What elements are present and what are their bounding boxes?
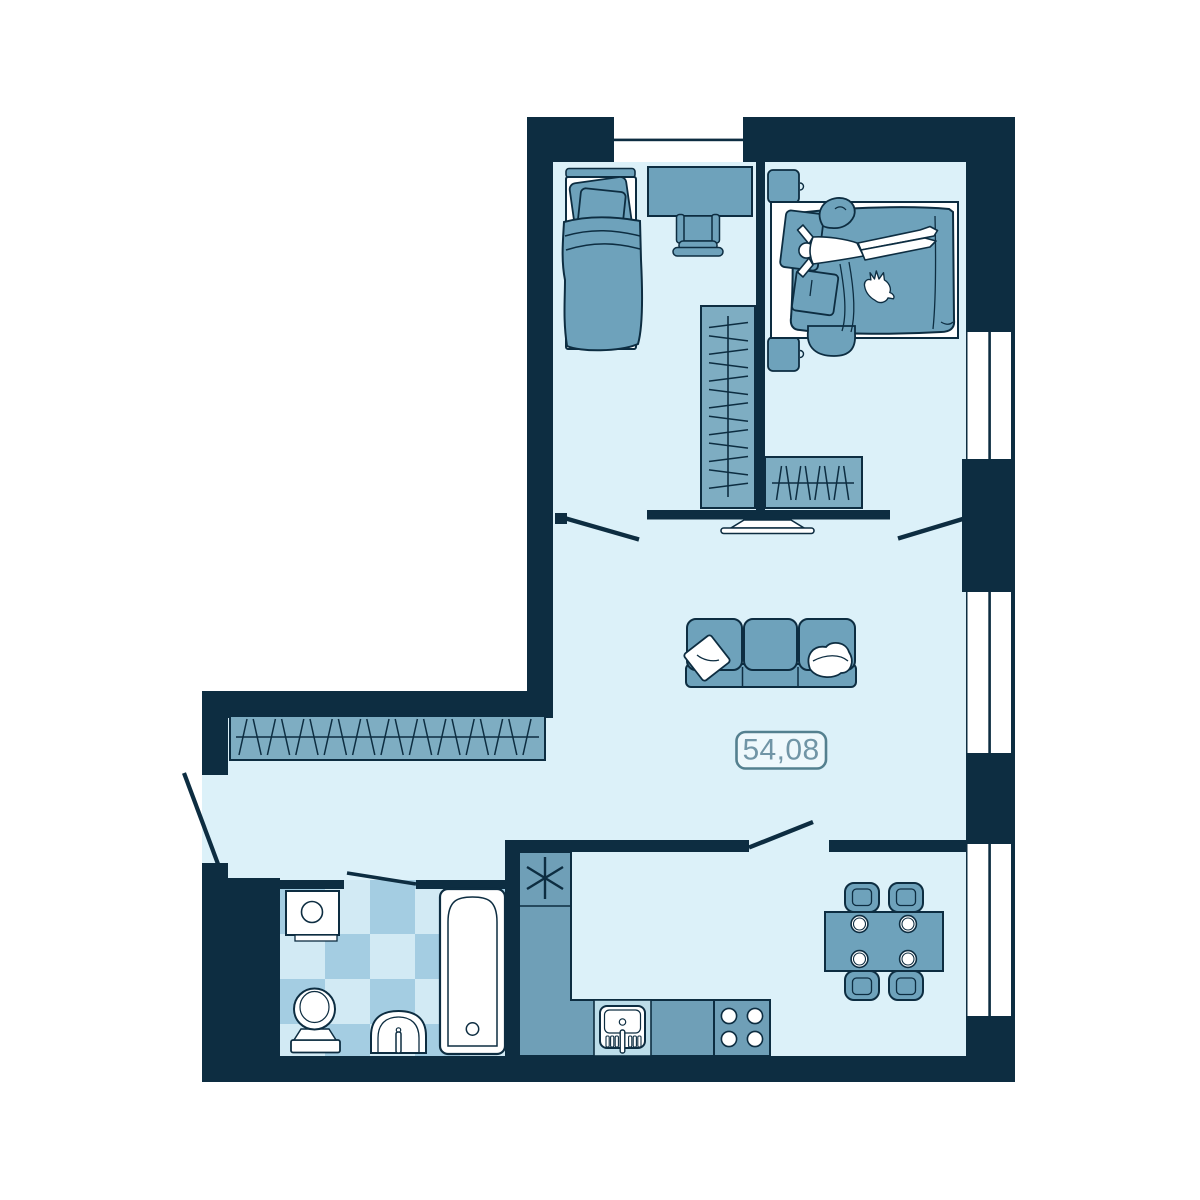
svg-text:54,08: 54,08	[742, 734, 819, 767]
